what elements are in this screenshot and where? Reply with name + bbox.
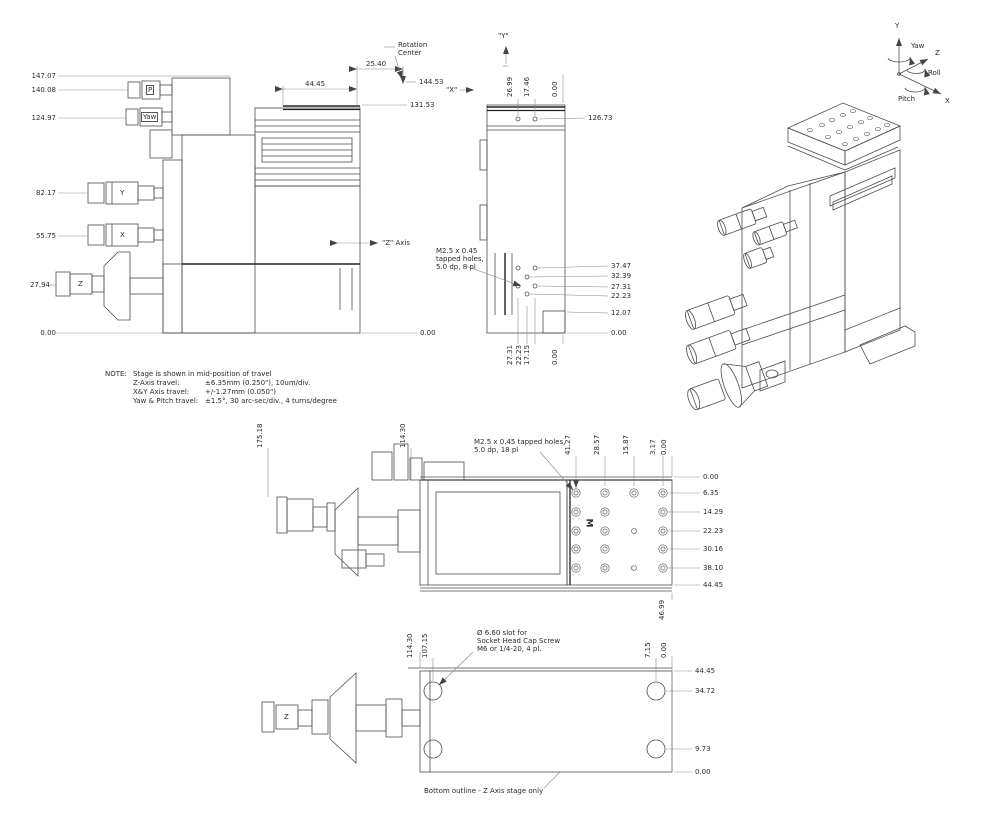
axis-label-z: Z [935,49,940,57]
dim-top-r14: 14.29 [703,508,723,516]
dim-bottom-114: 114.30 [406,634,414,659]
dim-top-depth: 46.99 [658,600,666,620]
note-line-3-value: +/-1.27mm (0.050") [205,388,276,396]
drawing-linework [0,0,1007,815]
note-line-4-label: Yaw & Pitch travel: [133,397,205,406]
axis-label-x: X [945,97,950,105]
dim-side-bot-17: 17.15 [523,345,531,365]
dim-top-28: 28.57 [593,435,601,455]
dim-side-32: 32.39 [611,272,631,280]
dim-front-131: 131.53 [410,101,435,109]
dim-top-15: 15.87 [622,435,630,455]
note-line-2-label: Z-Axis travel: [133,379,205,388]
slot-note-3: M6 or 1/4-20, 4 pl. [477,645,542,653]
dim-front-144: 144.53 [419,78,444,86]
side-tapped-note-3: 5.0 dp, 8 pl [436,263,476,271]
dim-front-82: 82.17 [10,189,56,197]
dim-side-bot-0: 0.00 [551,349,559,365]
dim-side-22: 22.23 [611,292,631,300]
dim-top-r22: 22.23 [703,527,723,535]
dim-top-t0: 0.00 [660,439,668,455]
dim-top-r30: 30.16 [703,545,723,553]
dim-front-width: 44.45 [305,80,325,88]
axis-label-yaw: Yaw [911,42,924,50]
top-tapped-note-2: 5.0 dp, 18 pl [474,446,518,454]
side-tapped-note-1: M2.5 x 0.45 [436,247,477,255]
dim-side-12: 12.07 [611,309,631,317]
dim-side-0: 0.00 [611,329,627,337]
knob-label-x: X [120,231,125,239]
note-line-3-label: X&Y Axis travel: [133,388,205,397]
dim-top-r0: 0.00 [703,473,719,481]
dim-side-top-17: 17.46 [523,77,531,97]
dim-bottom-7: 7.15 [644,642,652,658]
dim-side-top-0: 0.00 [551,81,559,97]
top-view-holes [572,489,667,572]
dim-front-27: 27.94 [4,281,50,289]
note-line-4-value: ±1.5°, 30 arc-sec/div., 4 turns/degree [205,397,337,405]
axis-label-pitch: Pitch [898,95,915,103]
dim-side-bot-22: 22.23 [515,345,523,365]
dim-top-r6: 6.35 [703,489,719,497]
dim-bottom-34: 34.72 [695,687,715,695]
dim-front-140: 140.08 [10,86,56,94]
orientation-mark-m: M [584,519,592,528]
dim-front-base-right: 0.00 [420,329,436,337]
dim-side-hole-height: 126.73 [588,114,613,122]
dim-front-0: 0.00 [10,329,56,337]
x-axis-label: "X" [446,86,457,94]
front-view-dimension-lines [50,47,474,333]
dim-side-top-26: 26.99 [506,77,514,97]
dim-top-r38: 38.10 [703,564,723,572]
note-line-1: Stage is shown in mid-position of travel [133,370,272,379]
dim-top-r44: 44.45 [703,581,723,589]
dim-bottom-44: 44.45 [695,667,715,675]
dim-top-41: 41.27 [564,435,572,455]
knob-label-z: Z [78,280,83,288]
dim-top-114: 114.30 [399,424,407,449]
bottom-view-caption: Bottom outline - Z Axis stage only [424,787,543,795]
dim-top-3: 3.17 [649,439,657,455]
axis-label-roll: Roll [928,69,941,77]
rotation-center-label-1: Rotation [398,41,427,49]
note-line-2-value: ±6.35mm (0.250"), 10um/div. [205,379,310,387]
top-view-linework [277,444,672,591]
dim-side-37: 37.47 [611,262,631,270]
slot-note-2: Socket Head Cap Screw [477,637,560,645]
note-line-2: Z-Axis travel:±6.35mm (0.250"), 10um/div… [133,379,310,388]
dim-bottom-107: 107.15 [421,634,429,659]
dim-side-bot-27: 27.31 [506,345,514,365]
knob-label-yaw: Yaw [141,112,158,122]
top-tapped-note-1: M2.5 x 0.45 tapped holes, [474,438,565,446]
note-title: NOTE: [105,370,127,379]
dim-front-offset: 25.40 [366,60,386,68]
top-view-dimension-lines [268,448,700,600]
side-view-linework [480,105,565,333]
drawing-sheet: 147.07 140.08 124.97 82.17 55.75 27.94 0… [0,0,1007,815]
bottom-z-knob-label: Z [284,713,289,721]
knob-label-pitch: P [146,85,154,95]
slot-note-1: Ø 6.60 slot for [477,629,527,637]
iso-view-linework [681,103,915,423]
bottom-view-dimension-lines [420,652,692,788]
z-axis-label: "Z" Axis [382,239,410,247]
bottom-view-linework [262,668,672,772]
axis-label-y: Y [895,22,899,30]
y-axis-label: "Y" [498,32,509,40]
dim-side-27: 27.31 [611,283,631,291]
side-tapped-note-2: tapped holes, [436,255,484,263]
dim-front-147: 147.07 [10,72,56,80]
dim-front-124: 124.97 [10,114,56,122]
dim-bottom-r0: 0.00 [695,768,711,776]
dim-top-175: 175.18 [256,424,264,449]
dim-bottom-t0: 0.00 [660,642,668,658]
knob-label-y: Y [120,189,124,197]
dim-bottom-9: 9.73 [695,745,711,753]
dim-front-55: 55.75 [10,232,56,240]
rotation-center-label-2: Center [398,49,422,57]
note-line-4: Yaw & Pitch travel:±1.5°, 30 arc-sec/div… [133,397,337,406]
front-view-linework [56,78,360,333]
note-line-3: X&Y Axis travel:+/-1.27mm (0.050") [133,388,276,397]
iso-top-holes [807,110,889,146]
